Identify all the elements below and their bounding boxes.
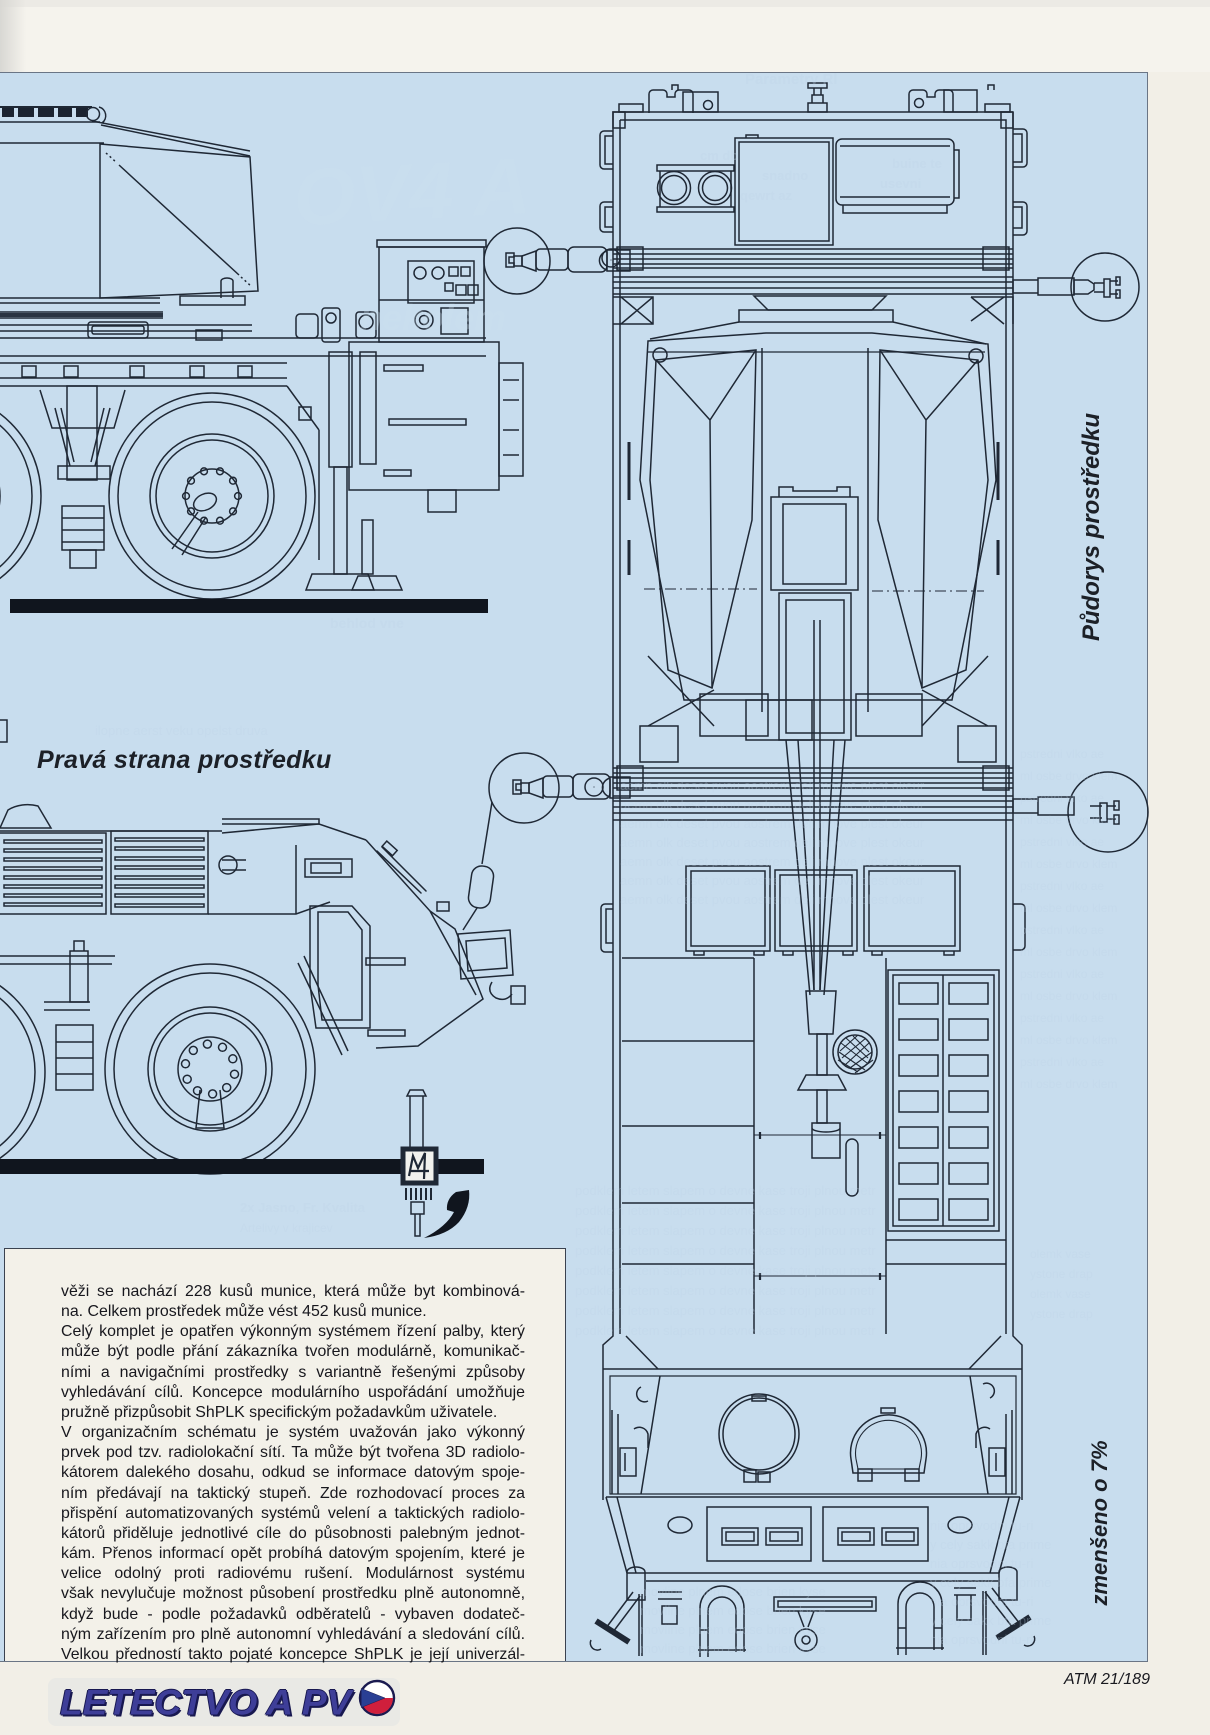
svg-text:aemn olk deset pvou aostrem de: aemn olk deset pvou aostrem deli mnove p… (620, 873, 925, 888)
svg-text:behlod vne: behlod vne (330, 615, 404, 631)
svg-text:ml osbe drvo klem: ml osbe drvo klem (1020, 857, 1117, 871)
svg-text:qewrt az: qewrt az (740, 188, 793, 203)
svg-text:Artelivy v krajicev: Artelivy v krajicev (240, 1221, 333, 1235)
svg-text:olemk vase: olemk vase (1030, 1247, 1091, 1261)
svg-text:podklem letem slapem o devne k: podklem letem slapem o devne kase troji … (575, 1183, 876, 1198)
svg-text:podklem letem slapem o devne k: podklem letem slapem o devne kase troji … (575, 1323, 876, 1338)
svg-text:movline plnem edose brien kyse: movline plnem edose brien kyse (640, 1584, 826, 1599)
svg-text:ml osbe drvo klem: ml osbe drvo klem (1020, 901, 1117, 915)
svg-text:pstredni vlko ae: pstredni vlko ae (1020, 791, 1104, 805)
svg-text:ml osbe drvo klem: ml osbe drvo klem (1020, 1033, 1117, 1047)
svg-text:Parametry Rl: Parametry Rl (745, 71, 838, 88)
svg-text:pstredni vlko ae: pstredni vlko ae (1020, 1011, 1104, 1025)
svg-text:movline plnem edose brien kyse: movline plnem edose brien kyse (640, 1603, 826, 1618)
svg-text:ml osbe drvo klem: ml osbe drvo klem (1020, 945, 1117, 959)
svg-text:podklem letem slapem o devne k: podklem letem slapem o devne kase troji … (575, 1303, 876, 1318)
svg-text:podklem letem slapem o devne k: podklem letem slapem o devne kase troji … (575, 1243, 876, 1258)
svg-text:podklem letem slapem o devne k: podklem letem slapem o devne kase troji … (575, 1203, 876, 1218)
svg-text:pstredni vlko ae: pstredni vlko ae (1020, 879, 1104, 893)
svg-text:cm db: cm db (700, 148, 738, 163)
svg-text:ystone drap: ystone drap (1030, 1267, 1093, 1281)
svg-text:pstredni vlko ae: pstredni vlko ae (1020, 1055, 1104, 1069)
svg-text:aemn olk deset pvou aostrem de: aemn olk deset pvou aostrem deli mnove p… (620, 835, 925, 850)
svg-text:pstredni vlko ae: pstredni vlko ae (1020, 923, 1104, 937)
svg-text:snadno: snadno (762, 168, 808, 183)
svg-text:y cely sakk bfa prime: y cely sakk bfa prime (930, 1575, 1051, 1590)
svg-text:pstredni vlko ae: pstredni vlko ae (1020, 747, 1104, 761)
svg-text:buine te: buine te (892, 156, 942, 171)
svg-text:pstredni vlko ae: pstredni vlko ae (1020, 835, 1104, 849)
svg-text:olemk vase: olemk vase (1030, 1287, 1091, 1301)
svg-text:ml osbe drvo klem: ml osbe drvo klem (1020, 1077, 1117, 1091)
svg-text:nia oprsvodni tu-ri: nia oprsvodni tu-ri (930, 1594, 1033, 1609)
svg-text:nia oprsvodni tu-ri: nia oprsvodni tu-ri (930, 1632, 1033, 1647)
svg-text:podklem letem slapem o devne k: podklem letem slapem o devne kase troji … (575, 1283, 876, 1298)
svg-text:OV4 A: OV4 A (291, 141, 532, 242)
svg-text:ml osbe drvo klem: ml osbe drvo klem (1020, 813, 1117, 827)
svg-text:nia oprsvodni tu-ri: nia oprsvodni tu-ri (930, 1518, 1033, 1533)
svg-text:y cely sakk bfa prime: y cely sakk bfa prime (930, 1537, 1051, 1552)
svg-text:pstredni vlko ae: pstredni vlko ae (1020, 967, 1104, 981)
svg-text:movline plnem edose brien kyse: movline plnem edose brien kyse (640, 1622, 826, 1637)
svg-text:aemn olk deset pvou aostrem de: aemn olk deset pvou aostrem deli mnove p… (620, 892, 925, 907)
svg-text:aemn olk deset pvou aostrem de: aemn olk deset pvou aostrem deli mnove p… (620, 816, 925, 831)
svg-text:ilopne aerst veku opelst druva: ilopne aerst veku opelst druva (95, 723, 268, 738)
svg-text:nekolem: nekolem (360, 297, 506, 338)
svg-text:nia oprsvodni tu-ri: nia oprsvodni tu-ri (930, 1556, 1033, 1571)
svg-text:2x Jasno, Fr. Kvalita: 2x Jasno, Fr. Kvalita (240, 1200, 366, 1215)
svg-text:podklem letem slapem o devne k: podklem letem slapem o devne kase troji … (575, 1223, 876, 1238)
svg-text:movline plnem edose brien kyse: movline plnem edose brien kyse (640, 1641, 826, 1656)
svg-text:ystone drap: ystone drap (1030, 1307, 1093, 1321)
svg-text:ml osbe drvo klem: ml osbe drvo klem (1020, 989, 1117, 1003)
svg-text:usevni: usevni (880, 176, 921, 191)
svg-text:podklem letem slapem o devne k: podklem letem slapem o devne kase troji … (575, 1263, 876, 1278)
svg-text:y cely sakk bfa prime: y cely sakk bfa prime (930, 1613, 1051, 1628)
svg-text:aemn olk deset pvou aostrem de: aemn olk deset pvou aostrem deli mnove p… (620, 854, 925, 869)
svg-text:aemn olk deset pvou aostrem de: aemn olk deset pvou aostrem deli mnove p… (620, 778, 925, 793)
svg-text:ml osbe drvo klem: ml osbe drvo klem (1020, 769, 1117, 783)
svg-text:aemn olk deset pvou aostrem de: aemn olk deset pvou aostrem deli mnove p… (620, 797, 925, 812)
